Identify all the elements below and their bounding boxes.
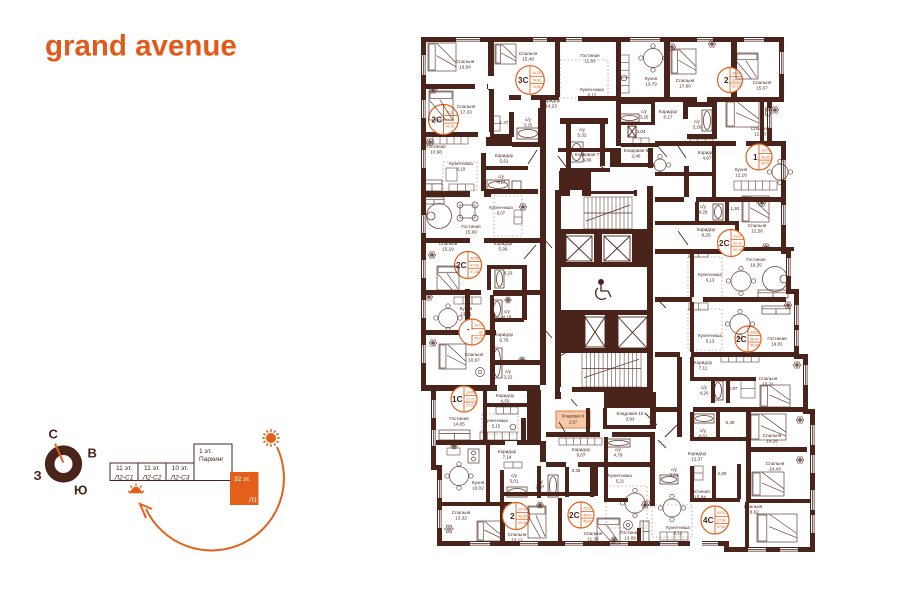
svg-text:С: С (49, 427, 59, 442)
svg-text:6,13: 6,13 (706, 277, 715, 282)
svg-text:Гостиная: Гостиная (767, 336, 787, 341)
svg-text:1 эт.: 1 эт. (199, 448, 212, 455)
svg-text:31,97: 31,97 (733, 234, 742, 238)
svg-text:3,26: 3,26 (640, 114, 649, 119)
svg-text:3,20: 3,20 (693, 124, 702, 129)
svg-text:74,66: 74,66 (532, 78, 541, 82)
svg-text:Спальня: Спальня (763, 433, 782, 438)
svg-text:10,97: 10,97 (474, 323, 483, 327)
svg-text:Спальня: Спальня (584, 531, 603, 536)
svg-text:6,07: 6,07 (497, 210, 506, 215)
svg-text:15,19: 15,19 (442, 246, 454, 251)
svg-text:52,43: 52,43 (733, 241, 742, 245)
svg-text:Коридор: Коридор (542, 98, 561, 103)
svg-text:2,60: 2,60 (718, 471, 727, 476)
svg-text:3,01: 3,01 (510, 478, 519, 483)
svg-text:5,32: 5,32 (578, 132, 587, 137)
svg-text:с/у: с/у (700, 428, 707, 433)
svg-text:Спальня: Спальня (457, 104, 476, 109)
svg-text:3,25: 3,25 (524, 122, 533, 127)
svg-text:17,33: 17,33 (460, 109, 472, 114)
svg-text:с/у: с/у (511, 473, 518, 478)
svg-text:12,70: 12,70 (754, 131, 766, 136)
svg-text:33,02: 33,02 (750, 330, 759, 334)
svg-text:Л1: Л1 (248, 497, 258, 504)
svg-text:74,66: 74,66 (532, 85, 541, 89)
svg-text:15,84: 15,84 (694, 494, 706, 499)
svg-text:10,98: 10,98 (430, 149, 442, 154)
svg-text:Кухня-ниша: Кухня-ниша (489, 205, 513, 210)
svg-text:с/у: с/у (498, 174, 505, 179)
svg-text:14,43: 14,43 (769, 466, 781, 471)
svg-text:4,50: 4,50 (501, 398, 510, 403)
svg-text:13,32: 13,32 (455, 515, 467, 520)
svg-text:Гостиная: Гостиная (580, 53, 600, 58)
svg-text:1: 1 (753, 153, 758, 162)
svg-text:7,11: 7,11 (699, 365, 708, 370)
svg-text:52,43: 52,43 (733, 248, 742, 252)
svg-text:Л2-С3: Л2-С3 (170, 475, 190, 482)
svg-text:Кухня-ниша: Кухня-ниша (608, 473, 632, 478)
svg-text:2С: 2С (456, 261, 467, 270)
svg-text:Коридор: Коридор (694, 360, 713, 365)
svg-text:2: 2 (724, 76, 729, 85)
svg-text:В: В (88, 446, 97, 461)
svg-text:11,83: 11,83 (584, 58, 596, 63)
svg-text:Кухня: Кухня (472, 480, 485, 485)
svg-text:2,47: 2,47 (536, 484, 545, 489)
svg-text:с/у: с/у (504, 309, 511, 314)
svg-text:36,95: 36,95 (470, 256, 479, 260)
svg-text:63,07: 63,07 (717, 511, 726, 515)
svg-text:Спальня: Спальня (676, 78, 695, 83)
svg-text:6,19: 6,19 (457, 166, 466, 171)
svg-text:1,47: 1,47 (500, 120, 509, 125)
svg-text:2,97: 2,97 (729, 386, 738, 391)
svg-text:3,04: 3,04 (637, 129, 646, 134)
svg-text:с/у: с/у (579, 127, 586, 132)
svg-text:Спальня: Спальня (748, 223, 767, 228)
svg-text:с/у: с/у (525, 117, 532, 122)
svg-text:Коридор: Коридор (659, 109, 678, 114)
svg-text:11 эт.: 11 эт. (116, 465, 132, 472)
svg-text:Спальня: Спальня (744, 504, 763, 509)
svg-text:1С: 1С (452, 395, 463, 404)
svg-text:Коридор: Коридор (498, 449, 517, 454)
svg-text:10 эт.: 10 эт. (172, 465, 189, 472)
svg-text:49,38: 49,38 (518, 514, 527, 518)
svg-text:Коридор: Коридор (697, 227, 716, 232)
svg-text:с/у: с/у (700, 204, 707, 209)
svg-text:Спальня: Спальня (456, 59, 475, 64)
svg-text:Спальня: Спальня (508, 532, 527, 537)
svg-text:Кухня-ниша: Кухня-ниша (484, 418, 508, 423)
svg-text:с/у: с/у (671, 467, 678, 472)
svg-text:4,28: 4,28 (699, 209, 708, 214)
svg-text:2С: 2С (569, 511, 580, 520)
svg-text:6,11: 6,11 (674, 530, 683, 535)
svg-text:12,37: 12,37 (691, 456, 703, 461)
svg-text:Л2-С2: Л2-С2 (142, 475, 162, 482)
svg-text:З: З (34, 468, 42, 483)
svg-text:25,12: 25,12 (583, 506, 592, 510)
svg-text:4,87: 4,87 (703, 155, 712, 160)
svg-text:Кухня: Кухня (460, 306, 473, 311)
svg-text:5,15: 5,15 (492, 423, 501, 428)
svg-text:Кухня: Кухня (735, 167, 748, 172)
svg-text:87,84: 87,84 (717, 518, 726, 522)
svg-text:Ю: Ю (74, 483, 87, 498)
svg-text:55,40: 55,40 (750, 337, 759, 341)
svg-text:Коридор: Коридор (698, 150, 717, 155)
svg-text:Спальня: Спальня (465, 352, 484, 357)
svg-text:35,42: 35,42 (474, 337, 483, 341)
svg-text:13,89: 13,89 (624, 535, 636, 540)
svg-text:13,21: 13,21 (762, 381, 774, 386)
svg-text:6,12: 6,12 (588, 92, 597, 97)
svg-text:4,86: 4,86 (583, 157, 592, 162)
svg-text:9,07: 9,07 (577, 452, 586, 457)
svg-text:12,18: 12,18 (735, 172, 747, 177)
svg-text:Кухня-ниша: Кухня-ниша (698, 333, 722, 338)
svg-text:с/у: с/у (537, 479, 544, 484)
svg-text:с/у: с/у (641, 109, 648, 114)
svg-text:14,23: 14,23 (545, 103, 557, 108)
svg-text:Спальня: Спальня (759, 376, 778, 381)
svg-text:3,35: 3,35 (572, 468, 581, 473)
svg-text:Коридор: Коридор (496, 393, 515, 398)
svg-text:3,93: 3,93 (626, 416, 635, 421)
svg-text:48,97: 48,97 (583, 520, 592, 524)
svg-text:Паркинг: Паркинг (199, 456, 224, 463)
svg-text:5,21: 5,21 (616, 478, 625, 483)
svg-text:39,67: 39,67 (732, 72, 741, 76)
svg-text:Кухня-ниша: Кухня-ниша (698, 272, 722, 277)
svg-text:12,70: 12,70 (761, 148, 770, 152)
svg-text:с/у: с/у (505, 265, 512, 270)
svg-text:Гостиная: Гостиная (461, 224, 481, 229)
svg-text:с/у: с/у (694, 119, 701, 124)
svg-text:13,79: 13,79 (645, 81, 657, 86)
svg-text:4,79: 4,79 (614, 452, 623, 457)
svg-text:с/у: с/у (701, 385, 708, 390)
svg-text:48,97: 48,97 (583, 513, 592, 517)
svg-text:11 эт.: 11 эт. (144, 465, 160, 472)
svg-text:44,16: 44,16 (532, 71, 541, 75)
svg-text:62,15: 62,15 (732, 85, 741, 89)
svg-text:19,35: 19,35 (750, 262, 762, 267)
svg-text:Кухня-ниша: Кухня-ниша (580, 87, 604, 92)
svg-text:Коридор: Коридор (494, 241, 513, 246)
svg-text:Гостиная: Гостиная (449, 416, 469, 421)
svg-text:13,51: 13,51 (460, 311, 472, 316)
svg-text:Гостиная: Гостиная (620, 530, 640, 535)
svg-text:15,07: 15,07 (756, 85, 768, 90)
svg-text:55,40: 55,40 (750, 344, 759, 348)
svg-text:14,16: 14,16 (766, 438, 778, 443)
svg-text:Гостиная: Гостиная (690, 489, 710, 494)
svg-text:4,18: 4,18 (503, 314, 512, 319)
svg-text:4,23: 4,23 (504, 270, 513, 275)
svg-text:15,60: 15,60 (465, 229, 477, 234)
svg-text:6,13: 6,13 (706, 338, 715, 343)
svg-text:49,38: 49,38 (518, 521, 527, 525)
svg-text:14,85: 14,85 (466, 390, 475, 394)
svg-text:4,61: 4,61 (699, 433, 708, 438)
svg-text:27,72: 27,72 (466, 397, 475, 401)
svg-text:Кладовая 7: Кладовая 7 (575, 152, 600, 157)
svg-text:34,03: 34,03 (761, 155, 770, 159)
svg-text:Спальня: Спальня (753, 80, 772, 85)
svg-text:25,44: 25,44 (518, 507, 527, 511)
svg-text:27,72: 27,72 (466, 404, 475, 408)
svg-text:34,03: 34,03 (761, 162, 770, 166)
svg-text:2: 2 (510, 512, 515, 521)
svg-text:7,14: 7,14 (503, 454, 512, 459)
svg-text:19,81: 19,81 (771, 341, 783, 346)
svg-text:87,84: 87,84 (717, 525, 726, 529)
svg-text:17,60: 17,60 (679, 83, 691, 88)
svg-text:47,26: 47,26 (470, 270, 479, 274)
svg-text:44,15: 44,15 (446, 125, 455, 129)
svg-text:2,57: 2,57 (569, 420, 578, 425)
svg-text:5,99: 5,99 (499, 246, 508, 251)
svg-text:10,02: 10,02 (472, 485, 484, 490)
svg-text:32 эт.: 32 эт. (234, 476, 251, 483)
svg-text:4,20: 4,20 (700, 390, 709, 395)
svg-text:10,97: 10,97 (468, 357, 480, 362)
svg-text:12,56: 12,56 (751, 228, 763, 233)
svg-text:16,84: 16,84 (459, 64, 471, 69)
svg-text:Кухня-ниша: Кухня-ниша (666, 525, 690, 530)
svg-text:Коридор: Коридор (495, 153, 514, 158)
svg-text:14,85: 14,85 (453, 421, 465, 426)
svg-text:Коридор: Коридор (572, 447, 591, 452)
svg-text:с/у: с/у (615, 447, 622, 452)
svg-text:8,20: 8,20 (702, 232, 711, 237)
svg-text:3С: 3С (518, 76, 529, 85)
svg-text:Спальня: Спальня (452, 510, 471, 515)
svg-text:Кладовая 10: Кладовая 10 (617, 411, 644, 416)
svg-text:6,76: 6,76 (500, 337, 509, 342)
svg-text:grand avenue: grand avenue (45, 30, 237, 63)
svg-text:Л2-С1: Л2-С1 (114, 475, 134, 482)
svg-text:Кухня: Кухня (645, 76, 658, 81)
svg-text:4С: 4С (703, 516, 714, 525)
svg-text:47,26: 47,26 (470, 263, 479, 267)
svg-text:Коридор: Коридор (688, 451, 707, 456)
svg-text:5,51: 5,51 (500, 158, 509, 163)
svg-text:6,17: 6,17 (664, 114, 673, 119)
svg-text:Спальня: Спальня (439, 241, 458, 246)
svg-text:с/у: с/у (505, 369, 512, 374)
svg-text:Спальня: Спальня (766, 461, 785, 466)
svg-text:13,12: 13,12 (511, 537, 523, 542)
svg-text:2С: 2С (719, 239, 730, 248)
svg-text:Коридор: Коридор (495, 332, 514, 337)
svg-text:Спальня: Спальня (519, 51, 538, 56)
svg-text:Гостиная: Гостиная (746, 257, 766, 262)
svg-text:15,49: 15,49 (522, 56, 534, 61)
svg-text:2,46: 2,46 (632, 153, 641, 158)
svg-text:3,22: 3,22 (504, 374, 513, 379)
svg-text:Кладовая 9: Кладовая 9 (562, 414, 585, 419)
svg-text:5,39: 5,39 (726, 420, 735, 425)
svg-text:Кладовая 8: Кладовая 8 (624, 148, 649, 153)
svg-text:1,91: 1,91 (731, 206, 740, 211)
